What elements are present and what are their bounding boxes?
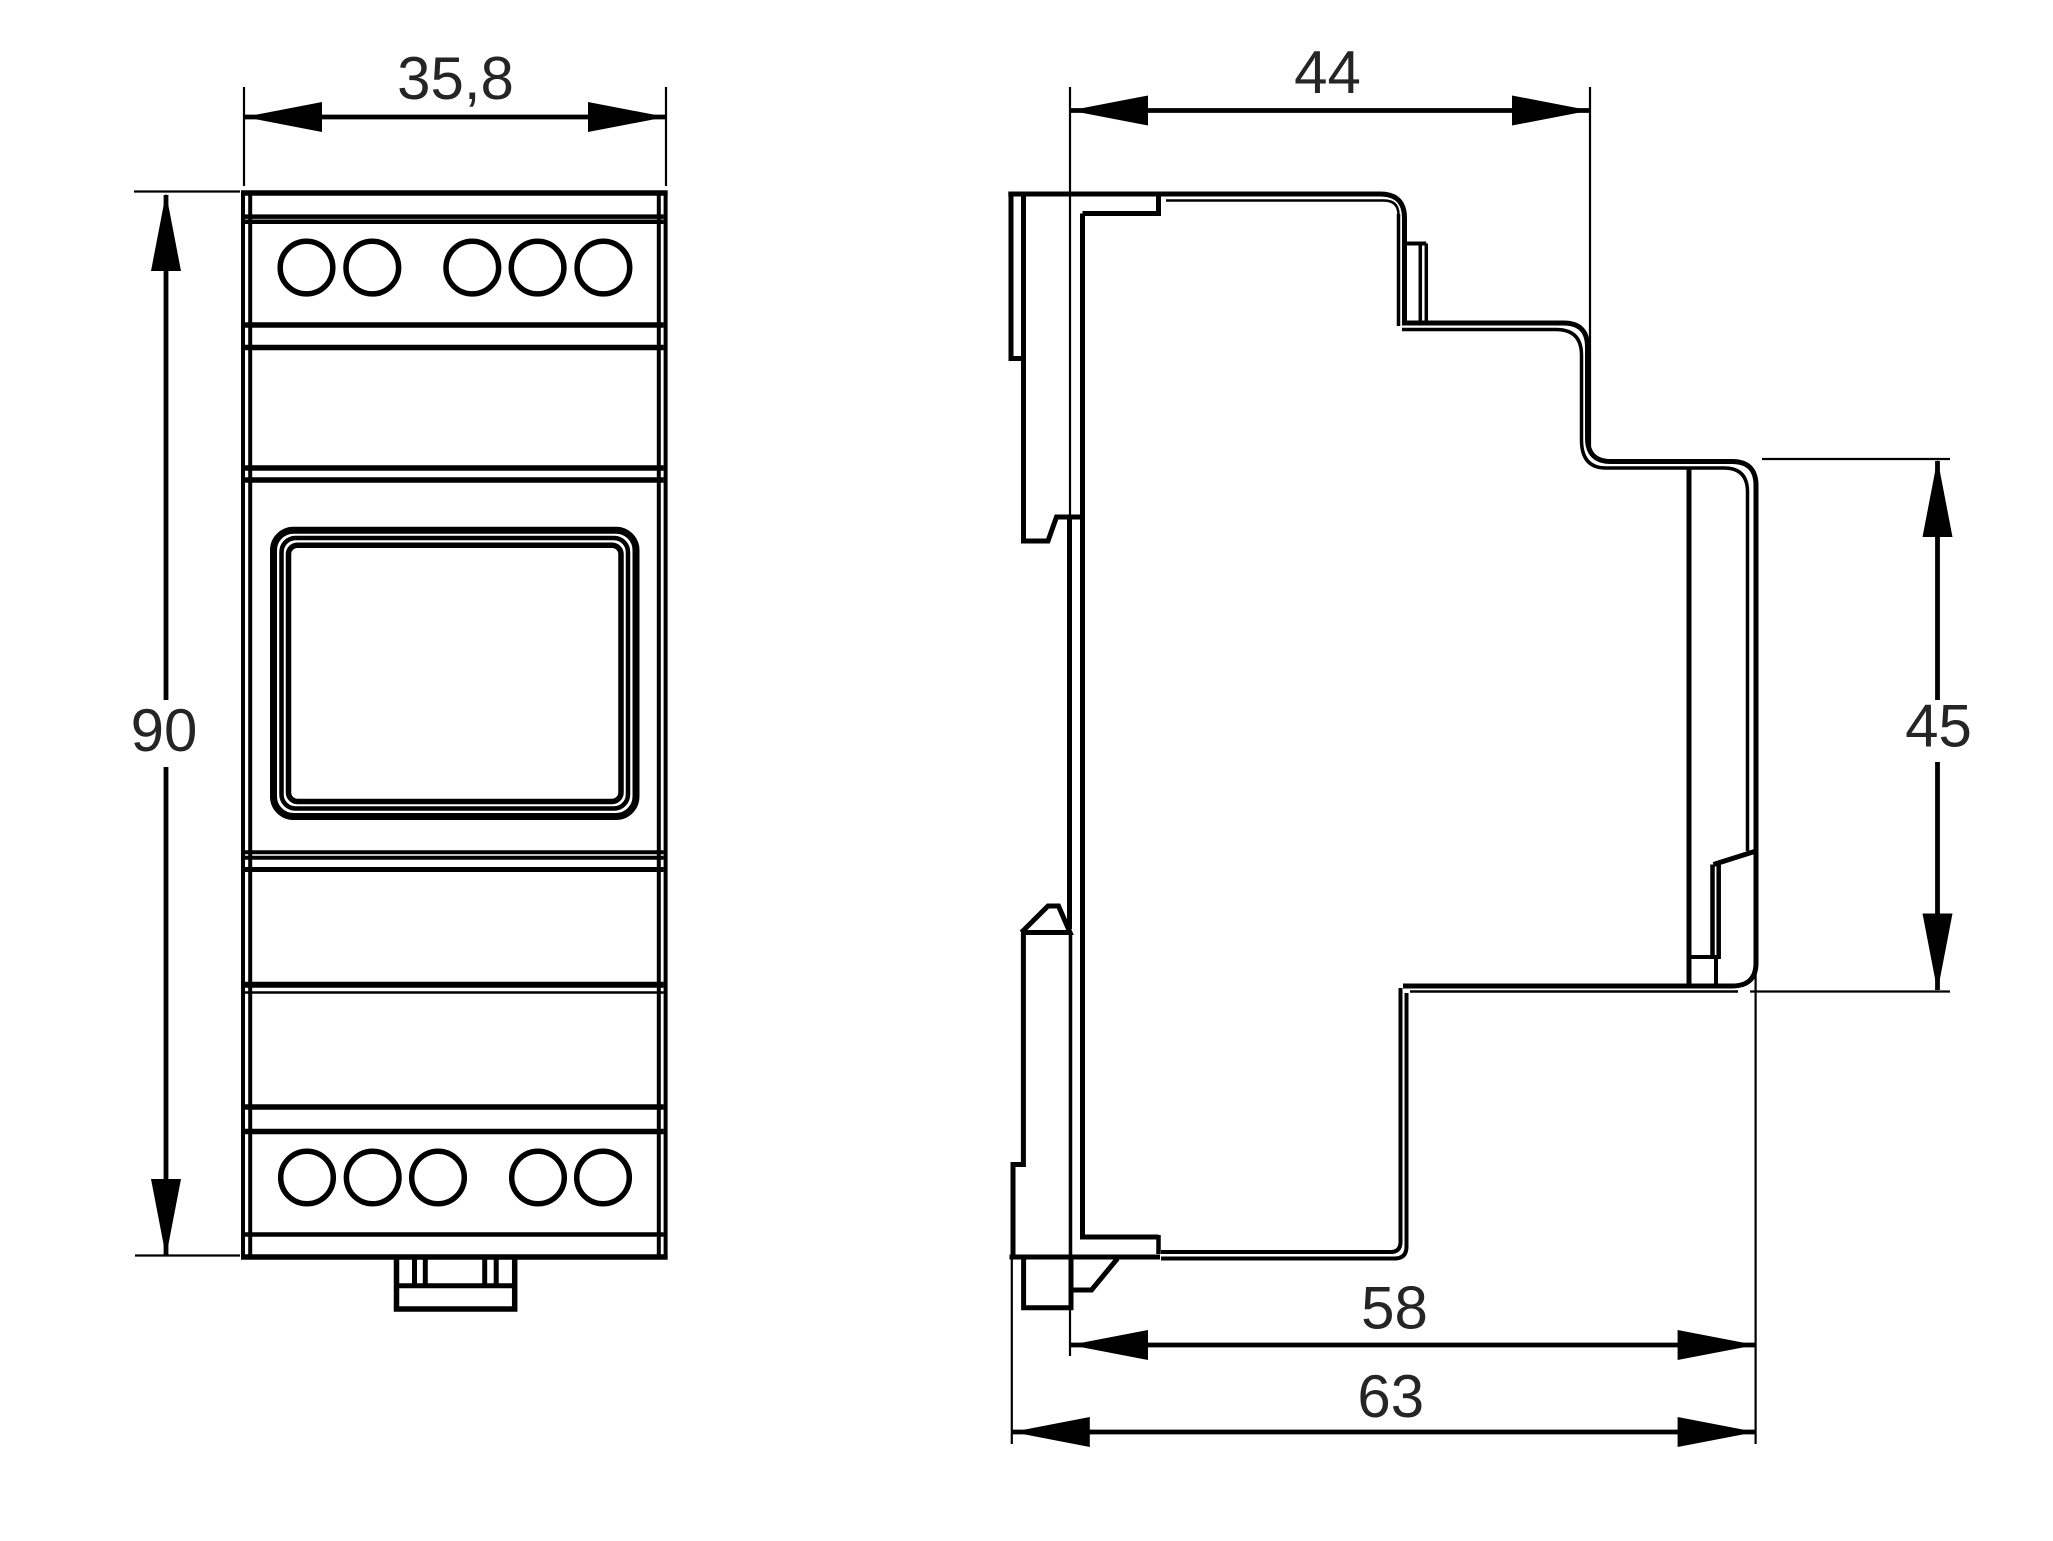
svg-text:44: 44 [1294,39,1361,106]
svg-text:35,8: 35,8 [397,45,514,112]
svg-text:63: 63 [1357,1363,1424,1430]
svg-text:45: 45 [1905,693,1972,760]
svg-text:58: 58 [1361,1275,1428,1342]
svg-text:90: 90 [131,697,198,764]
